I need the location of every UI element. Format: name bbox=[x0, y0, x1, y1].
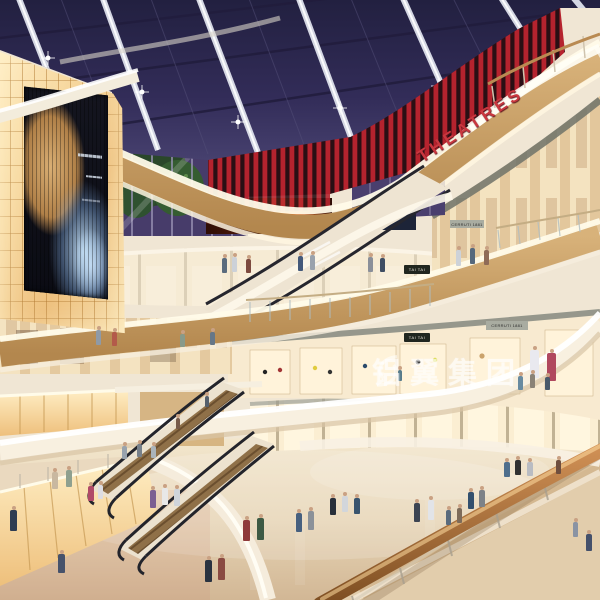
person bbox=[232, 257, 237, 272]
person bbox=[468, 492, 474, 509]
person bbox=[205, 396, 209, 407]
person bbox=[484, 250, 489, 265]
person bbox=[573, 522, 578, 537]
person bbox=[457, 508, 462, 523]
person bbox=[446, 510, 451, 525]
person bbox=[122, 446, 127, 459]
person bbox=[527, 462, 533, 476]
white-ribbon-beam bbox=[0, 18, 280, 118]
cerruti-store-sign: CERRUTI 1881 bbox=[450, 220, 484, 228]
cerruti-store-sign: CERRUTI 1881 bbox=[486, 321, 528, 330]
person bbox=[257, 518, 264, 540]
person bbox=[52, 472, 58, 489]
person bbox=[504, 462, 510, 477]
person bbox=[162, 488, 168, 505]
person bbox=[456, 250, 461, 266]
person bbox=[151, 446, 156, 458]
person bbox=[308, 511, 314, 530]
person bbox=[530, 374, 535, 388]
developer-watermark: 铝翼集团 bbox=[372, 350, 524, 392]
tai-tai-store-sign: TAI TAI bbox=[404, 265, 430, 274]
person bbox=[330, 498, 336, 515]
person bbox=[470, 248, 475, 264]
person bbox=[58, 554, 65, 573]
person bbox=[98, 485, 103, 499]
person bbox=[296, 513, 302, 532]
person bbox=[10, 510, 17, 531]
person bbox=[205, 560, 212, 582]
person bbox=[174, 489, 180, 506]
tai-tai-store-sign: TAI TAI bbox=[404, 333, 430, 342]
person bbox=[380, 258, 385, 272]
person bbox=[414, 503, 420, 522]
person bbox=[428, 500, 434, 520]
mall-atrium-rendering: THEATRES TAI TAI TAI TAI CERRUTI 1881 CE… bbox=[0, 0, 600, 600]
person bbox=[137, 444, 142, 457]
person bbox=[479, 490, 485, 507]
person bbox=[96, 330, 101, 345]
person bbox=[176, 418, 180, 429]
person bbox=[180, 334, 185, 347]
person bbox=[246, 259, 251, 273]
person bbox=[150, 490, 156, 508]
person bbox=[218, 558, 225, 580]
person bbox=[112, 332, 117, 346]
person bbox=[243, 520, 250, 541]
person bbox=[66, 470, 72, 487]
person bbox=[354, 498, 360, 514]
person bbox=[515, 460, 521, 475]
person bbox=[368, 257, 373, 272]
person bbox=[545, 377, 550, 390]
person bbox=[586, 534, 592, 551]
person bbox=[222, 258, 227, 273]
watermark-logo-icon bbox=[372, 350, 402, 390]
person bbox=[298, 256, 303, 271]
person bbox=[310, 255, 315, 270]
person bbox=[210, 332, 215, 345]
person bbox=[342, 496, 348, 512]
person bbox=[88, 486, 94, 501]
person bbox=[556, 460, 561, 474]
